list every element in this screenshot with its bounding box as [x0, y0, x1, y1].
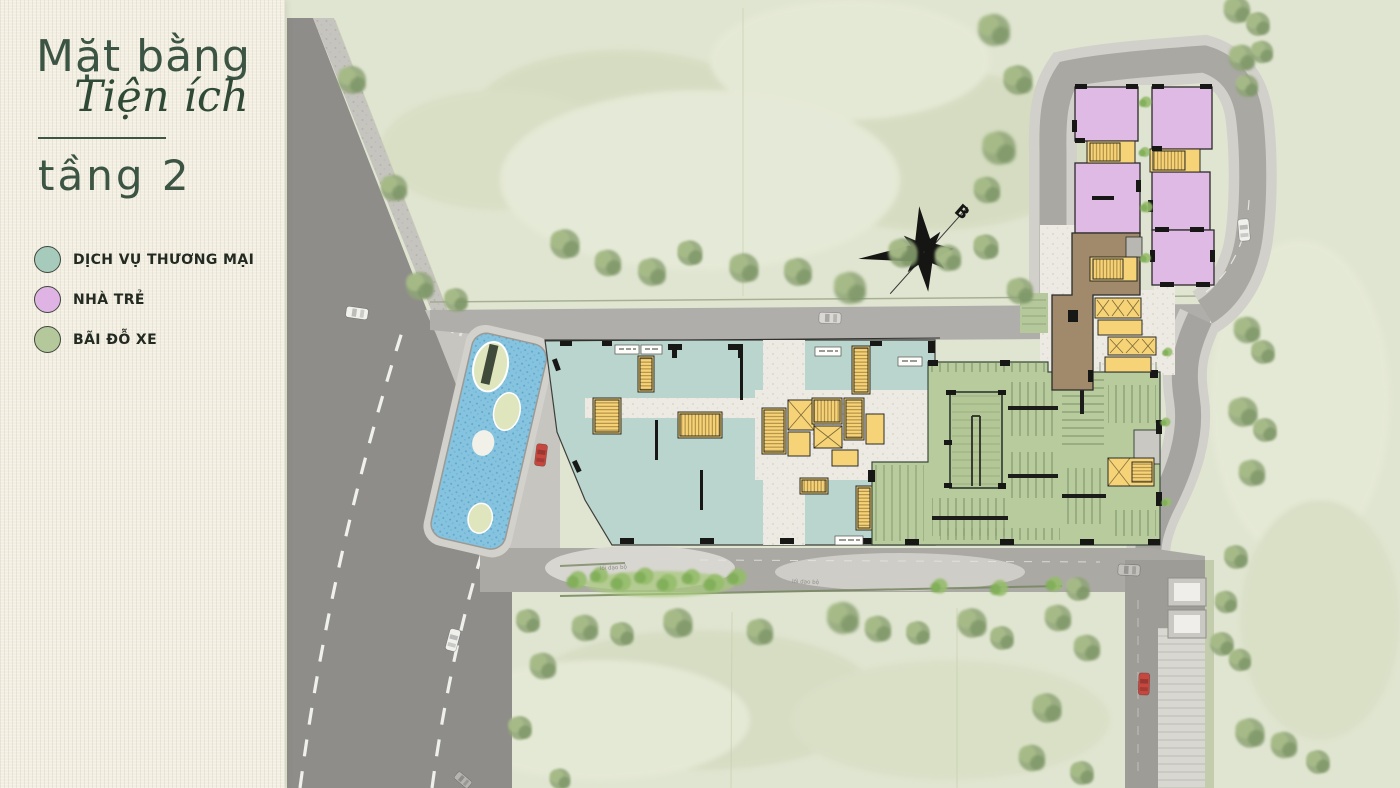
- svg-text:lối dạo bộ: lối dạo bộ: [600, 564, 628, 572]
- legend-label: NHÀ TRẺ: [73, 292, 145, 308]
- floor-label: tầng 2: [38, 151, 285, 200]
- title-divider: [38, 137, 166, 139]
- legend-panel: Mặt bằng Tiện ích tầng 2 DỊCH VỤ THƯƠNG …: [0, 0, 285, 788]
- car: [819, 312, 841, 324]
- legend-label: BÃI ĐỖ XE: [73, 332, 157, 348]
- svg-text:lối dạo bộ: lối dạo bộ: [792, 578, 820, 586]
- legend-label: DỊCH VỤ THƯƠNG MẠI: [73, 252, 254, 268]
- legend-item-commercial: DỊCH VỤ THƯƠNG MẠI: [34, 246, 285, 273]
- parking-swatch: [34, 326, 61, 353]
- page-subtitle-script: Tiện ích: [74, 76, 285, 119]
- car: [1118, 564, 1141, 576]
- car: [1238, 219, 1251, 242]
- page: B: [0, 0, 1400, 788]
- legend: DỊCH VỤ THƯƠNG MẠI NHÀ TRẺ BÃI ĐỖ XE: [34, 246, 285, 353]
- commercial-swatch: [34, 246, 61, 273]
- car: [534, 443, 548, 466]
- kindergarten-swatch: [34, 286, 61, 313]
- legend-item-kindergarten: NHÀ TRẺ: [34, 286, 285, 313]
- parking-ramp: [944, 390, 1006, 489]
- car: [1138, 673, 1150, 695]
- legend-item-parking: BÃI ĐỖ XE: [34, 326, 285, 353]
